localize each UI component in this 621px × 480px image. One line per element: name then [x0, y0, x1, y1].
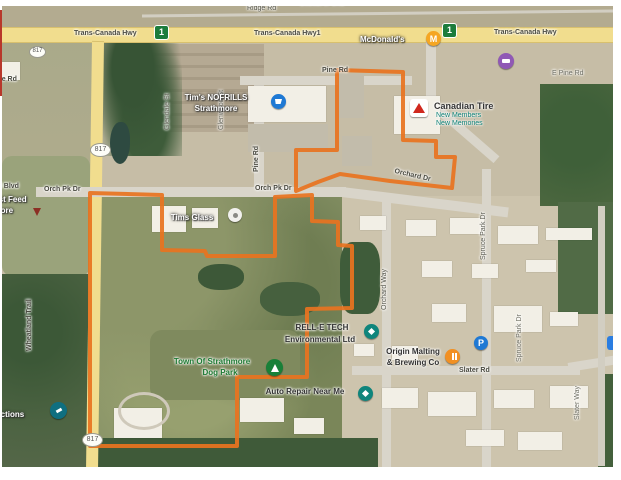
wheatland-trail-label: Wheatland Trail: [26, 253, 33, 351]
screenshot: Ridge Rd Bobcat of Sha Trans-Canada Hwy …: [0, 0, 621, 480]
tims-glass-label[interactable]: Tims Glass: [152, 213, 232, 222]
canadian-tire-sub1: New Members: [436, 112, 481, 119]
satellite-map[interactable]: Ridge Rd Bobcat of Sha Trans-Canada Hwy …: [2, 6, 613, 467]
mcdonalds-icon[interactable]: M: [426, 31, 441, 46]
mcdonalds-label[interactable]: McDonald's: [360, 35, 405, 44]
business-glyph: [368, 328, 375, 335]
slater-rd-label: Slater Rd: [459, 367, 490, 374]
auctions-icon[interactable]: [50, 402, 67, 419]
just-feed-label-line1[interactable]: r Just Feed: [2, 195, 27, 204]
orch-pk-dr-west-label: Orch Pk Dr: [44, 186, 81, 193]
al-blvd-label: al Blvd: [2, 183, 19, 190]
tims-glass-icon[interactable]: [228, 208, 242, 222]
bed-glyph: [502, 59, 510, 63]
bobcat-label: Bobcat of Sha: [300, 6, 344, 7]
glass-glyph: [233, 213, 238, 218]
ridge-rd-label: Ridge Rd: [247, 6, 276, 12]
canadian-tire-triangle: [413, 103, 425, 113]
hwy817-shield-south: 817: [82, 433, 103, 447]
e-pine-rd-label: E Pine Rd: [552, 70, 584, 77]
nofrills-label-line2[interactable]: Strathmore: [160, 104, 272, 113]
spruce-park-dr-label: Spruce Park Dr: [480, 168, 487, 260]
parking-icon[interactable]: P: [474, 336, 488, 350]
gavel-glyph: [55, 408, 62, 414]
orch-pk-dr-mid-label: Orch Pk Dr: [255, 185, 292, 192]
dog-park-label-line1[interactable]: Town Of Strathmore: [142, 357, 282, 366]
tch-shield-east: 1: [442, 23, 457, 38]
dog-park-tree-icon[interactable]: [266, 359, 283, 376]
auto-repair-icon[interactable]: [358, 386, 373, 401]
spruce-park-dr-south-label: Spruce Park Dr: [516, 284, 523, 362]
property-boundary: [2, 6, 613, 467]
orchard-way-label: Orchard Way: [381, 244, 388, 310]
canadian-tire-icon[interactable]: [410, 99, 428, 117]
slater-way-label: Slater Way: [574, 360, 581, 420]
origin-malting-restaurant-icon[interactable]: [445, 349, 460, 364]
tch-shield-west: 1: [154, 25, 169, 40]
auto-repair-label[interactable]: Auto Repair Near Me: [235, 387, 375, 396]
lodging-icon[interactable]: [498, 53, 514, 69]
just-feed-pin-icon[interactable]: [33, 208, 41, 216]
hwy817-shield-small: 817: [29, 46, 46, 58]
cart-glyph: [275, 99, 282, 104]
tch-label-mid: Trans-Canada Hwy1: [254, 30, 321, 37]
edge-poi-icon[interactable]: [607, 336, 613, 350]
canadian-tire-label[interactable]: Canadian Tire: [434, 101, 493, 111]
re-rd-label: re Rd: [2, 76, 17, 83]
tch-label-right: Trans-Canada Hwy: [494, 29, 557, 36]
nofrills-cart-icon[interactable]: [271, 94, 286, 109]
pine-rd-top-label: Pine Rd: [322, 67, 348, 74]
auctions-label[interactable]: Auctions: [2, 410, 24, 419]
fork-knife-glyph: [452, 353, 454, 360]
just-feed-label-line2[interactable]: thmore: [2, 206, 13, 215]
wrench-glyph: [362, 390, 369, 397]
rell-e-tech-icon[interactable]: [364, 324, 379, 339]
hwy817-shield-mid: 817: [90, 143, 111, 157]
pine-rd-vertical-label: Pine Rd: [253, 122, 260, 172]
dog-park-label-line2[interactable]: Dog Park: [160, 368, 280, 377]
tree-glyph: [271, 364, 279, 372]
canadian-tire-sub2: New Memories: [436, 120, 483, 127]
nofrills-label-line1[interactable]: Tim's NOFRILLS: [160, 93, 272, 102]
tch-label-left: Trans-Canada Hwy: [74, 30, 137, 37]
